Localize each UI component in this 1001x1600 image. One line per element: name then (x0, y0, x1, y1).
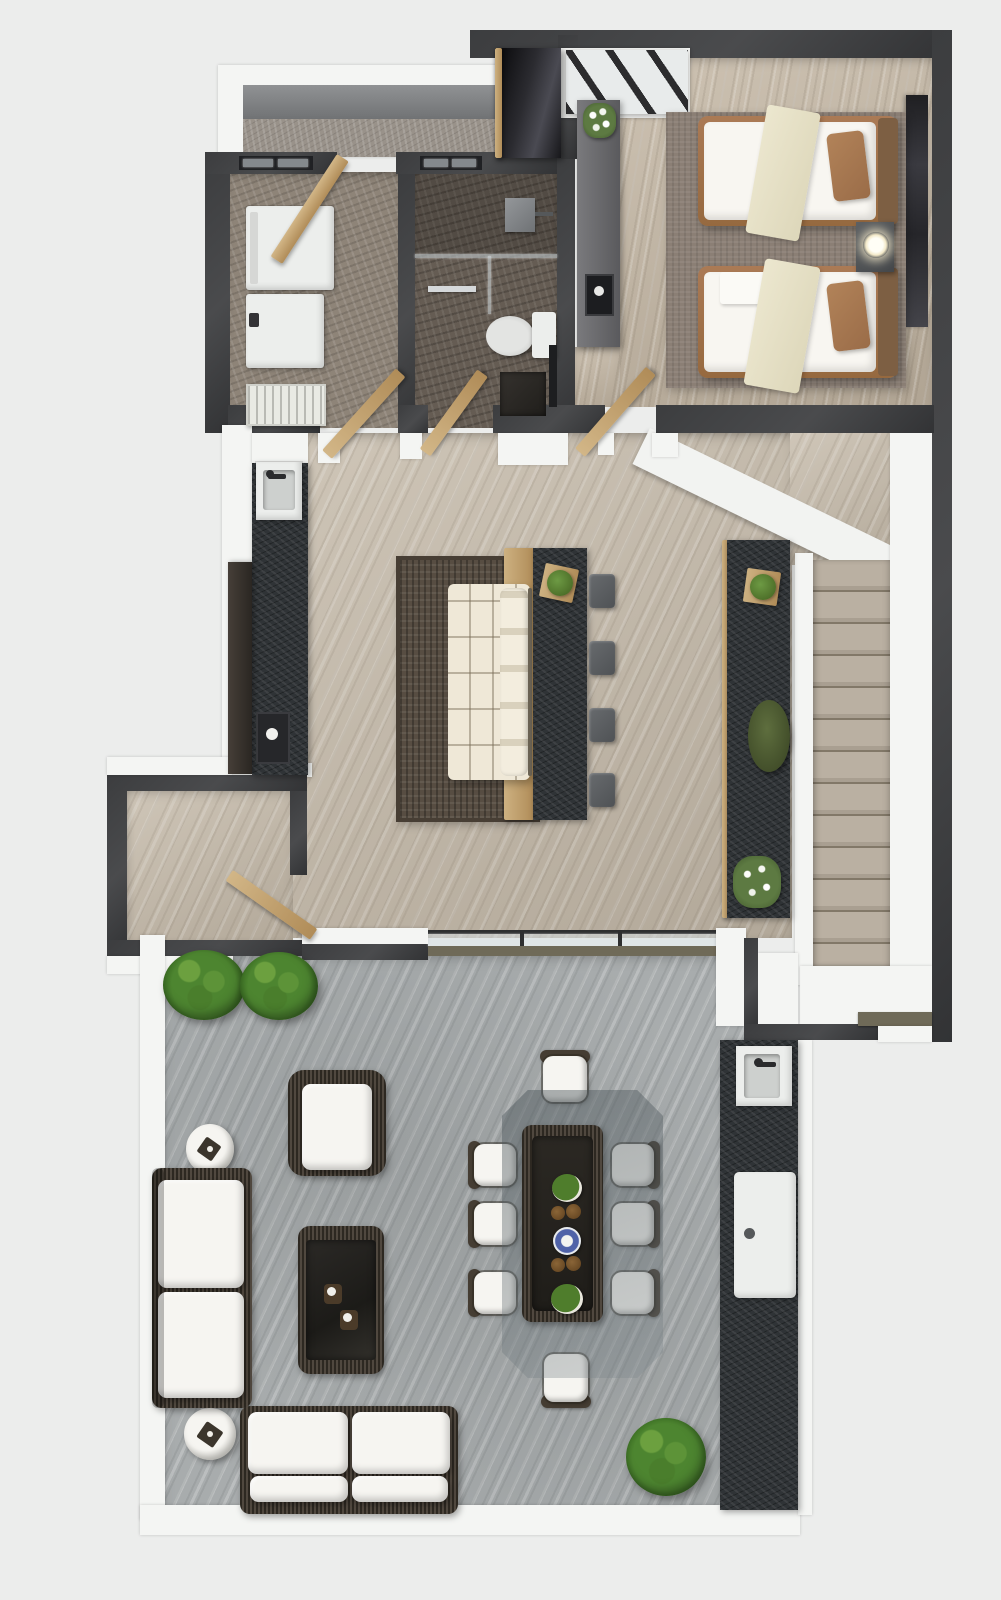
terrace-wall-bottom (140, 1505, 800, 1535)
cup-top (327, 1287, 336, 1296)
sofa-back-cushions (500, 588, 528, 776)
patio-parapet-wall (243, 85, 495, 119)
wall-landing-horizontal (744, 1024, 880, 1040)
shower-head (505, 198, 535, 232)
blue-pattern-plate (553, 1227, 581, 1255)
drying-rack (246, 384, 326, 426)
towel-bar (428, 286, 476, 292)
closet-wood-edge (495, 48, 502, 158)
small-bowl (566, 1256, 581, 1271)
shower-glass-return (488, 256, 491, 314)
bar-stool (589, 708, 615, 742)
slider-sill-wall (302, 944, 428, 960)
moss-bowl (748, 700, 790, 772)
framed-art-dot (594, 286, 604, 296)
headboard-art-panel (906, 95, 928, 327)
planter-plant-top (750, 574, 776, 600)
bathroom-window-pane (424, 159, 448, 167)
dryer-knob (249, 313, 259, 327)
sofa-seat-cushion (250, 1476, 348, 1502)
planter-flowers-bottom (733, 856, 781, 908)
bed-headboard (878, 268, 898, 376)
bed-headboard (878, 118, 898, 224)
shower-tray (500, 372, 546, 416)
salad-plate (551, 1284, 583, 1314)
landing-white-gap (878, 1026, 932, 1042)
door-jamb (400, 433, 422, 459)
outdoor-faucet-knob (754, 1058, 763, 1067)
bathroom-window-pane (452, 159, 476, 167)
wall-foyer-left (107, 775, 127, 955)
floor-plan-render (0, 0, 1001, 1600)
toilet-bowl (486, 316, 534, 356)
drum-side-table (184, 1408, 236, 1460)
bar-stool (589, 773, 615, 807)
wall-foyer-right-stub (290, 791, 307, 875)
washing-machine-door (250, 212, 258, 284)
cup-top (343, 1313, 352, 1322)
staircase-steps (813, 560, 890, 966)
shower-arm (535, 212, 553, 216)
sofa-cushion (158, 1292, 244, 1398)
sofa-seat-cushion (352, 1476, 448, 1502)
foyer-floor (125, 789, 293, 941)
wall-south-band-d (656, 405, 934, 433)
armchair-cushion (302, 1084, 372, 1170)
foyer-white-top (107, 757, 232, 775)
bush (240, 952, 318, 1020)
drum-side-table (186, 1124, 234, 1174)
bedroom-floor-patch (575, 347, 620, 407)
wall-landing-vertical (744, 938, 758, 1030)
slider-sill-white (302, 928, 428, 944)
sliding-door-glass (428, 934, 718, 946)
bush (626, 1418, 706, 1496)
wall-right-outer (932, 30, 952, 1042)
sliding-door-track (428, 946, 718, 956)
sliding-door-mullion (520, 932, 524, 946)
sofa-cushion (248, 1412, 348, 1474)
tall-pantry-cabinet (228, 562, 252, 774)
small-bowl (551, 1206, 565, 1220)
wardrobe-closet-black (495, 48, 561, 158)
stair-side-wall (890, 433, 932, 978)
door-jamb (498, 433, 568, 465)
island-plant (547, 570, 573, 596)
dryer (246, 294, 324, 368)
slider-post-white (716, 928, 746, 1026)
sofa-frame-edge (528, 588, 532, 776)
laundry-window-pane (278, 159, 308, 167)
fridge-handle (744, 1228, 755, 1239)
wall-foyer-top (107, 775, 307, 791)
bath-fixtures (549, 345, 557, 407)
shower-glass-partition (415, 254, 557, 258)
small-bowl (551, 1258, 565, 1272)
coffee-machine-cup (266, 728, 278, 740)
drum-dot (207, 1146, 213, 1152)
sofa-back-strip (152, 1168, 164, 1408)
small-bowl (566, 1204, 581, 1219)
sofa-cushion (352, 1412, 450, 1474)
potted-plant-white-flowers (583, 103, 616, 138)
stair-railing-wall (795, 553, 813, 985)
door-jamb (652, 433, 678, 457)
wall-laundry-left (205, 152, 230, 433)
bush (163, 950, 245, 1020)
wall-south-band-b (398, 405, 428, 433)
wall-laundry-bath-divider (398, 174, 415, 432)
landing-door-threshold (858, 1012, 932, 1026)
salad-plate (552, 1174, 582, 1202)
stair-landing-west-floor (758, 953, 798, 1026)
table-lamp-glowing (863, 232, 889, 258)
bar-stool (589, 574, 615, 608)
laundry-window-pane (243, 159, 273, 167)
sliding-door-mullion (618, 932, 622, 946)
kitchen-counter-jamb-top (252, 433, 308, 463)
terrace-wall-right (798, 1040, 812, 1515)
wall-bath-right (557, 152, 575, 432)
sofa-cushion (158, 1180, 244, 1288)
bar-stool (589, 641, 615, 675)
kitchen-faucet-knob (266, 470, 274, 478)
